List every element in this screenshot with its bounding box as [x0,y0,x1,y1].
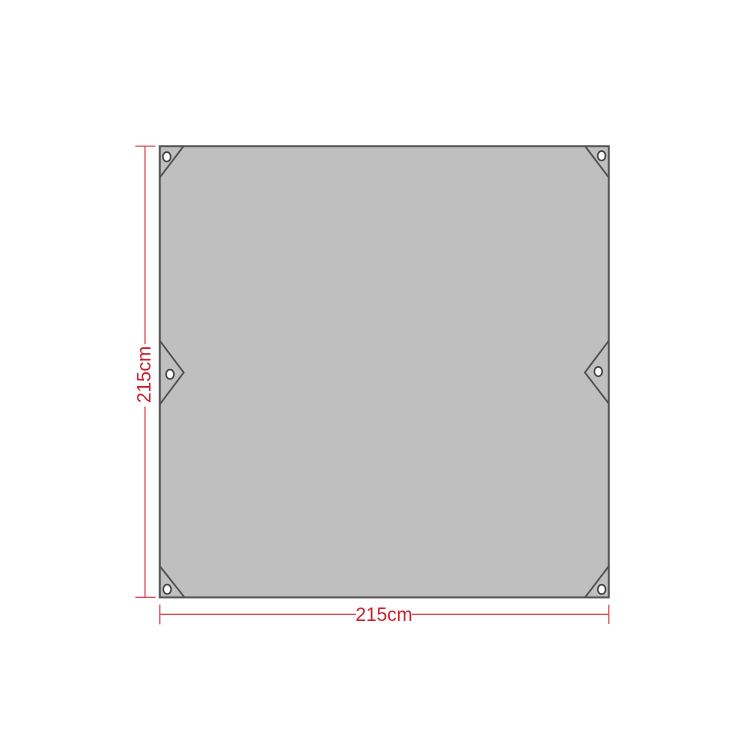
svg-text:215cm: 215cm [135,346,156,403]
svg-text:215cm: 215cm [355,605,412,626]
